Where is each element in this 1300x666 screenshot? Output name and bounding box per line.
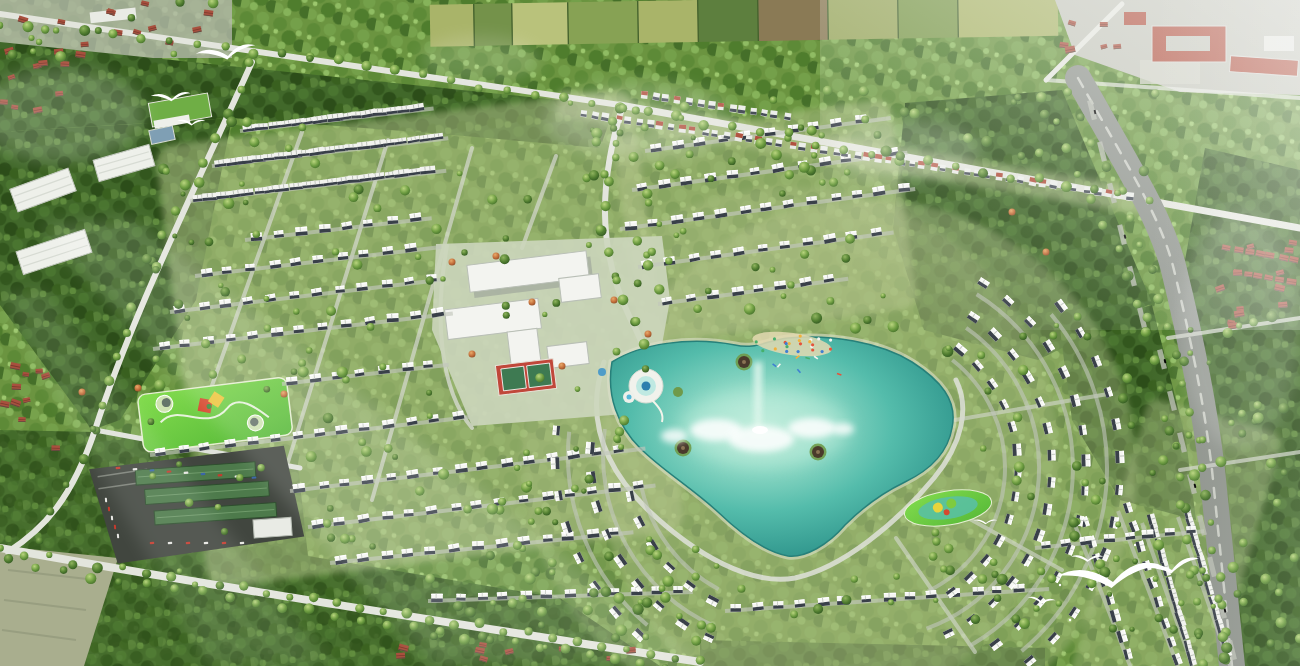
villa-building: [1081, 454, 1090, 466]
tree: [223, 198, 234, 209]
villa-building: [382, 279, 393, 287]
tree: [589, 170, 600, 181]
villa-building: [222, 267, 232, 275]
tree: [693, 304, 702, 313]
orange-tree: [493, 253, 500, 260]
tree: [618, 444, 624, 450]
tree: [737, 585, 745, 593]
fountain-core: [752, 426, 768, 434]
street-tree: [307, 55, 314, 62]
car: [184, 472, 189, 475]
tree: [980, 445, 986, 451]
tree: [526, 481, 532, 487]
street-tree: [92, 562, 103, 573]
car: [240, 542, 245, 544]
tree: [239, 181, 245, 187]
villa-building: [523, 455, 535, 464]
village-house: [12, 383, 21, 389]
tree: [1019, 618, 1030, 629]
tree: [264, 296, 270, 302]
villa-building: [317, 322, 327, 330]
mist-patch: [420, 36, 540, 84]
beach-dot: [785, 350, 788, 353]
fountain-spray: [832, 423, 854, 435]
tree: [813, 604, 823, 614]
bird-speck: [1059, 584, 1061, 586]
beach-dot: [811, 348, 814, 351]
tree: [95, 27, 102, 34]
tree: [691, 636, 701, 646]
tree: [431, 224, 441, 234]
street-tree: [278, 49, 287, 58]
tree: [427, 413, 433, 419]
beach-dot: [774, 347, 777, 350]
shophouse-building: [790, 142, 797, 150]
villa-building: [633, 480, 644, 489]
villa-building: [1115, 451, 1124, 464]
tree: [374, 204, 382, 212]
tree: [604, 552, 614, 562]
tree: [1049, 332, 1057, 340]
tree: [528, 518, 535, 525]
tree: [30, 48, 36, 54]
orange-tree: [611, 297, 618, 304]
tree: [1128, 422, 1136, 430]
tree: [29, 35, 35, 41]
townhouse-building: [420, 166, 436, 175]
townhouse-building: [345, 144, 358, 151]
fountain-spray: [661, 429, 687, 443]
street-tree: [123, 329, 131, 337]
scene-svg: [0, 0, 1300, 666]
villa-building: [925, 590, 936, 599]
village-house: [51, 445, 60, 451]
beach-dot: [755, 340, 758, 343]
villa-building: [794, 599, 805, 608]
tree: [893, 573, 899, 579]
villa-building: [587, 528, 600, 538]
villa-building: [312, 255, 323, 264]
villa-building: [753, 284, 763, 292]
tree: [944, 544, 954, 554]
tree: [215, 504, 222, 511]
tree: [645, 199, 652, 206]
street-tree: [119, 563, 126, 570]
villa-building: [861, 595, 871, 602]
tree: [306, 347, 313, 354]
tree: [1033, 605, 1040, 612]
plaza-pond: [642, 382, 651, 391]
street-tree: [475, 84, 483, 92]
street-tree: [194, 41, 202, 49]
villa-building: [519, 495, 529, 503]
tree: [8, 50, 18, 60]
tree: [751, 263, 759, 271]
tree: [799, 162, 810, 173]
tree: [1084, 333, 1092, 341]
tree: [332, 248, 339, 255]
villa-building: [758, 244, 768, 252]
tree: [148, 418, 155, 425]
beach-dot: [829, 348, 832, 351]
street-tree: [68, 560, 77, 569]
tree: [1113, 555, 1120, 562]
village-house: [36, 369, 43, 374]
tree: [634, 279, 642, 287]
tree: [337, 366, 348, 377]
tree: [851, 575, 858, 582]
tree: [542, 507, 551, 516]
tree: [1082, 479, 1089, 486]
tree: [285, 145, 293, 153]
villa-building: [1047, 477, 1055, 488]
street-tree: [143, 579, 151, 587]
tree: [670, 169, 680, 179]
tree: [744, 303, 756, 315]
tree: [1019, 332, 1027, 340]
street-tree: [60, 566, 68, 574]
villa-building: [973, 587, 984, 595]
tree: [1018, 365, 1029, 376]
car: [201, 473, 206, 476]
villa-building: [710, 250, 721, 259]
tree: [708, 175, 715, 182]
tree: [523, 195, 532, 204]
tree: [575, 386, 581, 392]
tree: [181, 192, 186, 197]
villa-building: [727, 170, 739, 179]
villa-building: [382, 246, 394, 255]
tree: [646, 536, 652, 542]
beach-dot: [799, 342, 802, 345]
car: [117, 534, 119, 539]
street-tree: [53, 27, 59, 33]
tree: [932, 529, 940, 537]
mist-patch: [1180, 210, 1300, 450]
tree: [662, 575, 673, 586]
villa-building: [1048, 450, 1056, 461]
farm-field: [638, 0, 699, 43]
beach-dot: [773, 337, 776, 340]
tree: [349, 192, 359, 202]
tree: [171, 51, 178, 58]
street-tree: [390, 65, 400, 75]
street-tree: [31, 564, 39, 572]
street-tree: [238, 86, 246, 94]
beach-dot: [798, 339, 801, 342]
villa-building: [1012, 444, 1021, 456]
villa-building: [671, 214, 684, 224]
villa-building: [552, 425, 560, 435]
tree: [787, 281, 794, 288]
tree: [1047, 574, 1056, 583]
village-house: [106, 9, 113, 14]
street-tree: [334, 54, 344, 64]
villa-building: [730, 604, 741, 612]
street-tree: [171, 206, 180, 215]
aerial-masterplan-render: [0, 0, 1300, 666]
tree: [933, 598, 938, 603]
tree: [41, 25, 49, 33]
shophouse-building: [775, 139, 782, 147]
tree: [785, 128, 794, 137]
tree: [242, 117, 252, 127]
water-feature: [598, 368, 606, 376]
shophouse-building: [765, 138, 772, 146]
street-tree: [642, 365, 649, 372]
villa-building: [692, 212, 704, 221]
street-tree: [22, 21, 33, 32]
villa-building: [341, 319, 352, 327]
tree: [585, 475, 594, 484]
village-house: [60, 61, 69, 67]
tree: [659, 585, 666, 592]
tree: [706, 623, 716, 633]
villa-building: [779, 241, 790, 249]
street-tree: [85, 573, 96, 584]
village-house: [38, 60, 48, 67]
tree: [326, 306, 336, 316]
tree: [971, 615, 981, 625]
street-tree: [362, 61, 372, 71]
tree: [128, 14, 136, 22]
townhouse-building: [298, 150, 310, 157]
tree: [656, 221, 662, 227]
gazebo-island: [810, 444, 827, 461]
tree: [680, 228, 687, 235]
tree: [996, 574, 1007, 585]
farm-field: [568, 1, 639, 44]
tree: [990, 558, 998, 566]
tree: [1099, 478, 1106, 485]
villa-building: [274, 230, 284, 238]
street-tree: [756, 128, 765, 137]
villa-building: [387, 313, 399, 322]
orange-tree: [529, 299, 536, 306]
car: [105, 498, 107, 503]
tree: [705, 288, 712, 295]
villa-building: [625, 221, 638, 231]
tree: [487, 194, 497, 204]
tree: [440, 276, 445, 281]
street-tree: [286, 594, 293, 601]
mist-patch: [830, 120, 980, 180]
market-office: [253, 517, 292, 538]
farm-field: [512, 2, 569, 45]
beach-dot: [829, 339, 832, 342]
tree: [573, 446, 579, 452]
tree: [800, 250, 809, 259]
street-tree: [79, 454, 89, 464]
orange-tree: [645, 331, 652, 338]
villa-building: [647, 219, 657, 227]
tree: [697, 620, 706, 629]
street-tree: [248, 49, 258, 59]
villa-building: [774, 281, 786, 291]
tree: [36, 39, 42, 45]
street-tree: [419, 70, 427, 78]
tree: [1012, 476, 1022, 486]
villa-building: [764, 127, 775, 136]
tennis-court: [501, 366, 527, 391]
small-island: [673, 387, 683, 397]
tree: [642, 597, 653, 608]
villa-building: [1081, 486, 1088, 496]
village-house: [204, 9, 214, 16]
villa-building: [410, 310, 422, 319]
townhouse-building: [202, 193, 218, 201]
tree: [674, 232, 680, 238]
village-house: [81, 42, 89, 48]
gazebo-island: [736, 354, 753, 371]
tree: [243, 200, 249, 206]
tree: [978, 574, 988, 584]
tree: [1069, 517, 1079, 527]
tree: [1091, 495, 1101, 505]
bird-speck: [1134, 544, 1136, 546]
tree: [665, 257, 672, 264]
beach-dot: [785, 342, 788, 345]
street-tree: [383, 621, 392, 630]
street-tree: [79, 25, 90, 36]
street-tree: [210, 133, 220, 143]
street-tree: [108, 29, 117, 38]
tree: [352, 260, 362, 270]
tree: [984, 388, 991, 395]
villa-building: [293, 325, 304, 333]
orange-tree: [559, 363, 566, 370]
villa-building: [585, 442, 595, 455]
school-building: [559, 274, 602, 303]
tree: [586, 242, 592, 248]
tree: [652, 550, 662, 560]
villa-building: [363, 219, 373, 227]
villa-building: [1041, 541, 1051, 549]
villa-building: [992, 586, 1001, 593]
shophouse-building: [770, 110, 778, 119]
villa-building: [658, 179, 671, 189]
tree: [642, 189, 652, 199]
bird-speck: [1069, 619, 1071, 621]
tree: [205, 238, 214, 247]
tree: [888, 599, 894, 605]
street-tree: [812, 142, 820, 150]
street-tree: [36, 537, 44, 545]
tree: [367, 323, 375, 331]
car: [108, 507, 110, 512]
beach-dot: [797, 350, 800, 353]
tree: [790, 610, 798, 618]
street-tree: [198, 158, 208, 168]
street-tree: [20, 552, 29, 561]
tree: [654, 284, 664, 294]
townhouse-building: [237, 156, 253, 165]
villa-building: [608, 483, 621, 492]
tree: [779, 190, 786, 197]
street-tree: [596, 225, 604, 233]
mist-patch: [545, 82, 735, 158]
tree: [535, 507, 543, 515]
villa-building: [1115, 485, 1123, 496]
shophouse-building: [750, 108, 757, 116]
street-tree: [46, 507, 54, 515]
tree: [426, 276, 434, 284]
tree: [771, 150, 782, 161]
villa-building: [404, 243, 417, 253]
tree: [785, 170, 794, 179]
villa-building: [1104, 534, 1115, 542]
tree: [461, 249, 467, 255]
shophouse-building: [784, 113, 791, 121]
street-tree: [309, 593, 318, 602]
villa-building: [387, 216, 398, 224]
tree: [633, 236, 643, 246]
villa-building: [905, 592, 915, 600]
tree: [676, 613, 682, 619]
villa-building: [335, 286, 345, 293]
tree: [1027, 493, 1035, 501]
street-tree: [355, 604, 364, 613]
tree: [1013, 413, 1022, 422]
tree: [755, 138, 766, 149]
fountain-spray: [788, 418, 836, 438]
tree: [1130, 627, 1135, 632]
villa-building: [806, 196, 817, 205]
tree: [1069, 531, 1080, 542]
bird-speck: [1024, 564, 1026, 566]
tree: [415, 254, 421, 260]
tree: [929, 552, 938, 561]
villa-building: [295, 226, 308, 236]
tree: [811, 152, 817, 158]
villa-building: [319, 224, 331, 233]
beach-dot: [821, 350, 824, 353]
tree: [1118, 393, 1128, 403]
street-tree: [166, 37, 173, 44]
villa-building: [245, 264, 255, 271]
villa-building: [1079, 536, 1091, 546]
tree: [500, 254, 510, 264]
car: [218, 474, 223, 477]
villa-building: [269, 260, 281, 269]
street-tree: [136, 34, 145, 43]
villa-building: [752, 602, 764, 611]
tree: [1115, 522, 1121, 528]
tree: [692, 546, 700, 554]
tree: [1109, 624, 1117, 632]
tree: [842, 595, 852, 605]
villa-building: [542, 491, 554, 501]
villa-building: [773, 601, 783, 609]
villa-building: [732, 286, 745, 296]
tree: [535, 373, 544, 382]
tree: [571, 485, 579, 493]
street-tree: [180, 179, 191, 190]
villa-building: [1125, 532, 1135, 540]
villa-building: [289, 291, 299, 299]
tree: [523, 450, 530, 457]
tree: [770, 96, 778, 104]
tree: [172, 233, 177, 238]
tree: [299, 124, 307, 132]
beach-dot: [811, 343, 814, 346]
farm-field: [698, 0, 759, 42]
street-tree: [604, 248, 613, 257]
villa-building: [338, 252, 349, 260]
street-tree: [115, 578, 122, 585]
shophouse-building: [798, 142, 806, 151]
tree: [1107, 592, 1112, 597]
